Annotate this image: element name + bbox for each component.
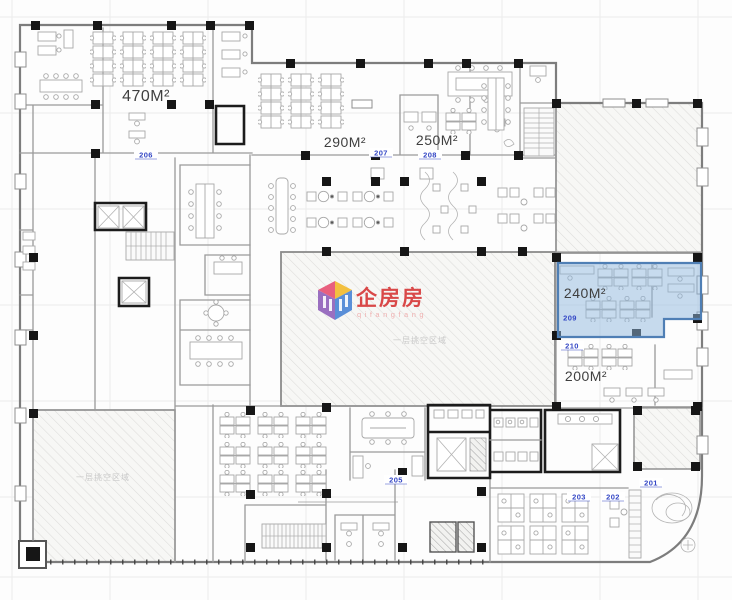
floor-plan-svg: 470M² 290M² 250M² 240M² 200M² 一层挑空区域 一层挑…	[0, 0, 732, 600]
room-tag-203[interactable]: 203	[567, 492, 591, 502]
room-area-label-250: 250M²	[416, 132, 458, 148]
void-area-shaft	[634, 407, 700, 469]
svg-text:210: 210	[565, 342, 579, 351]
room-tag-201[interactable]: 201	[639, 478, 663, 488]
room-tag-206[interactable]: 206	[134, 150, 158, 160]
room-tag-202[interactable]: 202	[601, 492, 625, 502]
void-label-left: 一层挑空区域	[76, 472, 130, 482]
furniture-meeting-rooms	[180, 165, 250, 385]
room-tag-210[interactable]: 210	[560, 341, 584, 351]
room-area-label-290: 290M²	[324, 134, 366, 150]
room-area-label-240: 240M²	[564, 285, 606, 301]
watermark-romanized: qifangfang	[357, 310, 427, 319]
svg-text:207: 207	[374, 149, 388, 158]
furniture-room-207	[258, 74, 345, 128]
void-area-bottom-left	[33, 410, 175, 562]
svg-text:203: 203	[572, 493, 586, 502]
furniture-top-right-room	[482, 66, 554, 156]
void-area-top-right	[556, 103, 702, 253]
svg-text:209: 209	[563, 314, 577, 323]
void-area-center	[281, 252, 555, 406]
svg-text:201: 201	[644, 479, 658, 488]
core-center	[434, 410, 486, 471]
watermark-brand: 企房房	[355, 286, 425, 310]
svg-text:206: 206	[139, 151, 153, 160]
room-tag-205[interactable]: 205	[384, 475, 408, 485]
stair-top-right	[524, 108, 554, 156]
core-left	[23, 206, 174, 303]
room-area-label-200: 200M²	[565, 368, 607, 384]
furniture-restrooms	[494, 414, 618, 470]
room-tag-208[interactable]: 208	[418, 150, 442, 160]
svg-text:205: 205	[389, 476, 403, 485]
room-tag-207[interactable]: 207	[369, 148, 393, 158]
furniture-lounge	[269, 168, 555, 240]
room-area-label-470: 470M²	[122, 88, 170, 105]
svg-text:208: 208	[423, 151, 437, 160]
void-label-center: 一层挑空区域	[393, 335, 447, 345]
floor-plan: 470M² 290M² 250M² 240M² 200M² 一层挑空区域 一层挑…	[0, 0, 732, 600]
furniture-reception	[610, 493, 695, 552]
room-tag-209[interactable]: 209	[558, 313, 582, 323]
watermark: 企房房 qifangfang	[318, 281, 427, 320]
svg-text:202: 202	[606, 493, 620, 502]
